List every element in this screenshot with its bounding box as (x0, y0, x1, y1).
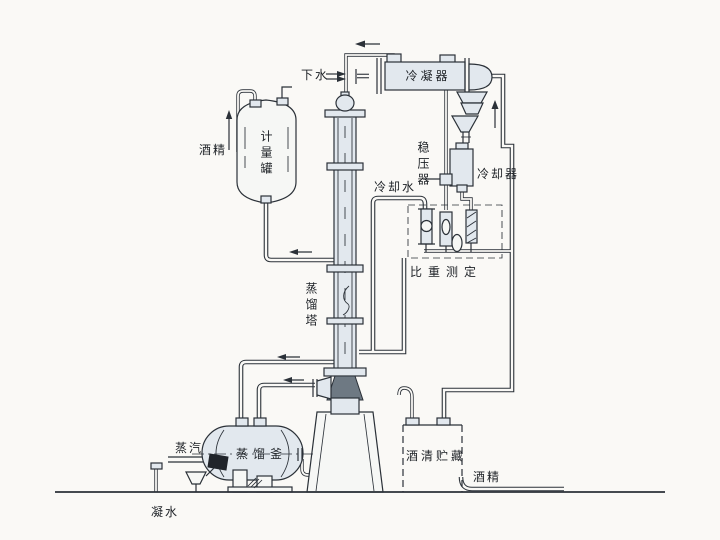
column-neck (331, 398, 359, 414)
label-condensate: 凝水 (151, 505, 179, 519)
label-distillation-kettle: 蒸馏釜 (236, 447, 287, 461)
reducer (457, 92, 487, 103)
label-alcohol-out: 酒精 (473, 470, 501, 484)
label-pressure-stabilizer: 稳压器 (416, 141, 430, 189)
column-flange (324, 368, 366, 376)
label-gravity-measurement: 比重测定 (410, 265, 482, 279)
reducer (461, 103, 483, 114)
metering-tank-nozzle (277, 98, 288, 105)
column-top-dome (336, 95, 354, 111)
drain-funnel (186, 472, 206, 484)
storage-tank-nozzle (406, 418, 419, 425)
metering-tank-bottom-nozzle (261, 196, 271, 203)
kettle-nozzle (236, 418, 248, 426)
column-skirt (307, 412, 383, 492)
label-cooler: 冷却器 (477, 167, 519, 181)
label-alcohol-feed: 酒精 (199, 143, 227, 157)
sight-glass-2 (440, 212, 452, 246)
column-flange (327, 163, 363, 170)
label-drain-water: 下水 (301, 68, 329, 82)
cooler-bottom-nozzle (457, 185, 467, 192)
hydrometer-bulb (452, 235, 462, 252)
process-flow-diagram: 下水 冷凝器 酒精 计量罐 稳压器 冷却水 冷却器 比重测定 蒸馏塔 蒸汽 蒸馏… (0, 0, 720, 540)
diagram-linework (0, 0, 720, 540)
storage-tank-nozzle (437, 418, 450, 425)
kettle-nozzle (254, 418, 266, 426)
hydrometer-cylinder (466, 210, 477, 243)
cooler-collar (456, 143, 468, 149)
flow-arrow-feed (289, 249, 312, 255)
label-cooling-water: 冷却水 (374, 180, 416, 194)
cooler-funnel (452, 116, 478, 132)
label-steam: 蒸汽 (175, 441, 203, 455)
label-distillation-column: 蒸馏塔 (304, 282, 318, 330)
flow-arrow-left (355, 41, 380, 48)
column-flange (327, 318, 363, 324)
metering-tank-nozzle (250, 100, 261, 107)
flow-arrow-up (492, 100, 499, 128)
flow-arrow-vapor2 (283, 377, 304, 383)
condenser-right-head (469, 64, 492, 90)
column-bottom-cone (327, 376, 363, 400)
column-side-nozzle (313, 377, 331, 399)
label-condenser: 冷凝器 (396, 69, 460, 83)
column-flange (327, 265, 363, 272)
flow-arrow-vapor1 (277, 354, 300, 360)
condensate-outlet (151, 463, 162, 469)
label-alcohol-storage: 酒清贮藏 (406, 449, 466, 463)
cooler-body (450, 149, 473, 186)
sight-glass-1 (418, 209, 435, 244)
label-metering-tank: 计量罐 (259, 130, 273, 178)
steam-valve (208, 454, 228, 470)
